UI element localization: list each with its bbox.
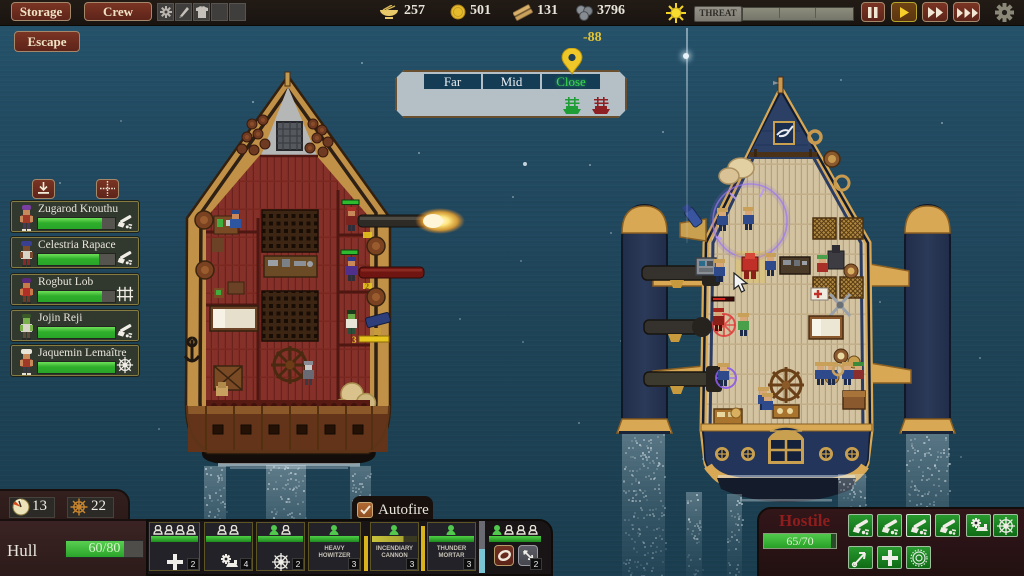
- svg-text:3: 3: [352, 335, 357, 345]
- svg-text:2: 2: [365, 282, 369, 291]
